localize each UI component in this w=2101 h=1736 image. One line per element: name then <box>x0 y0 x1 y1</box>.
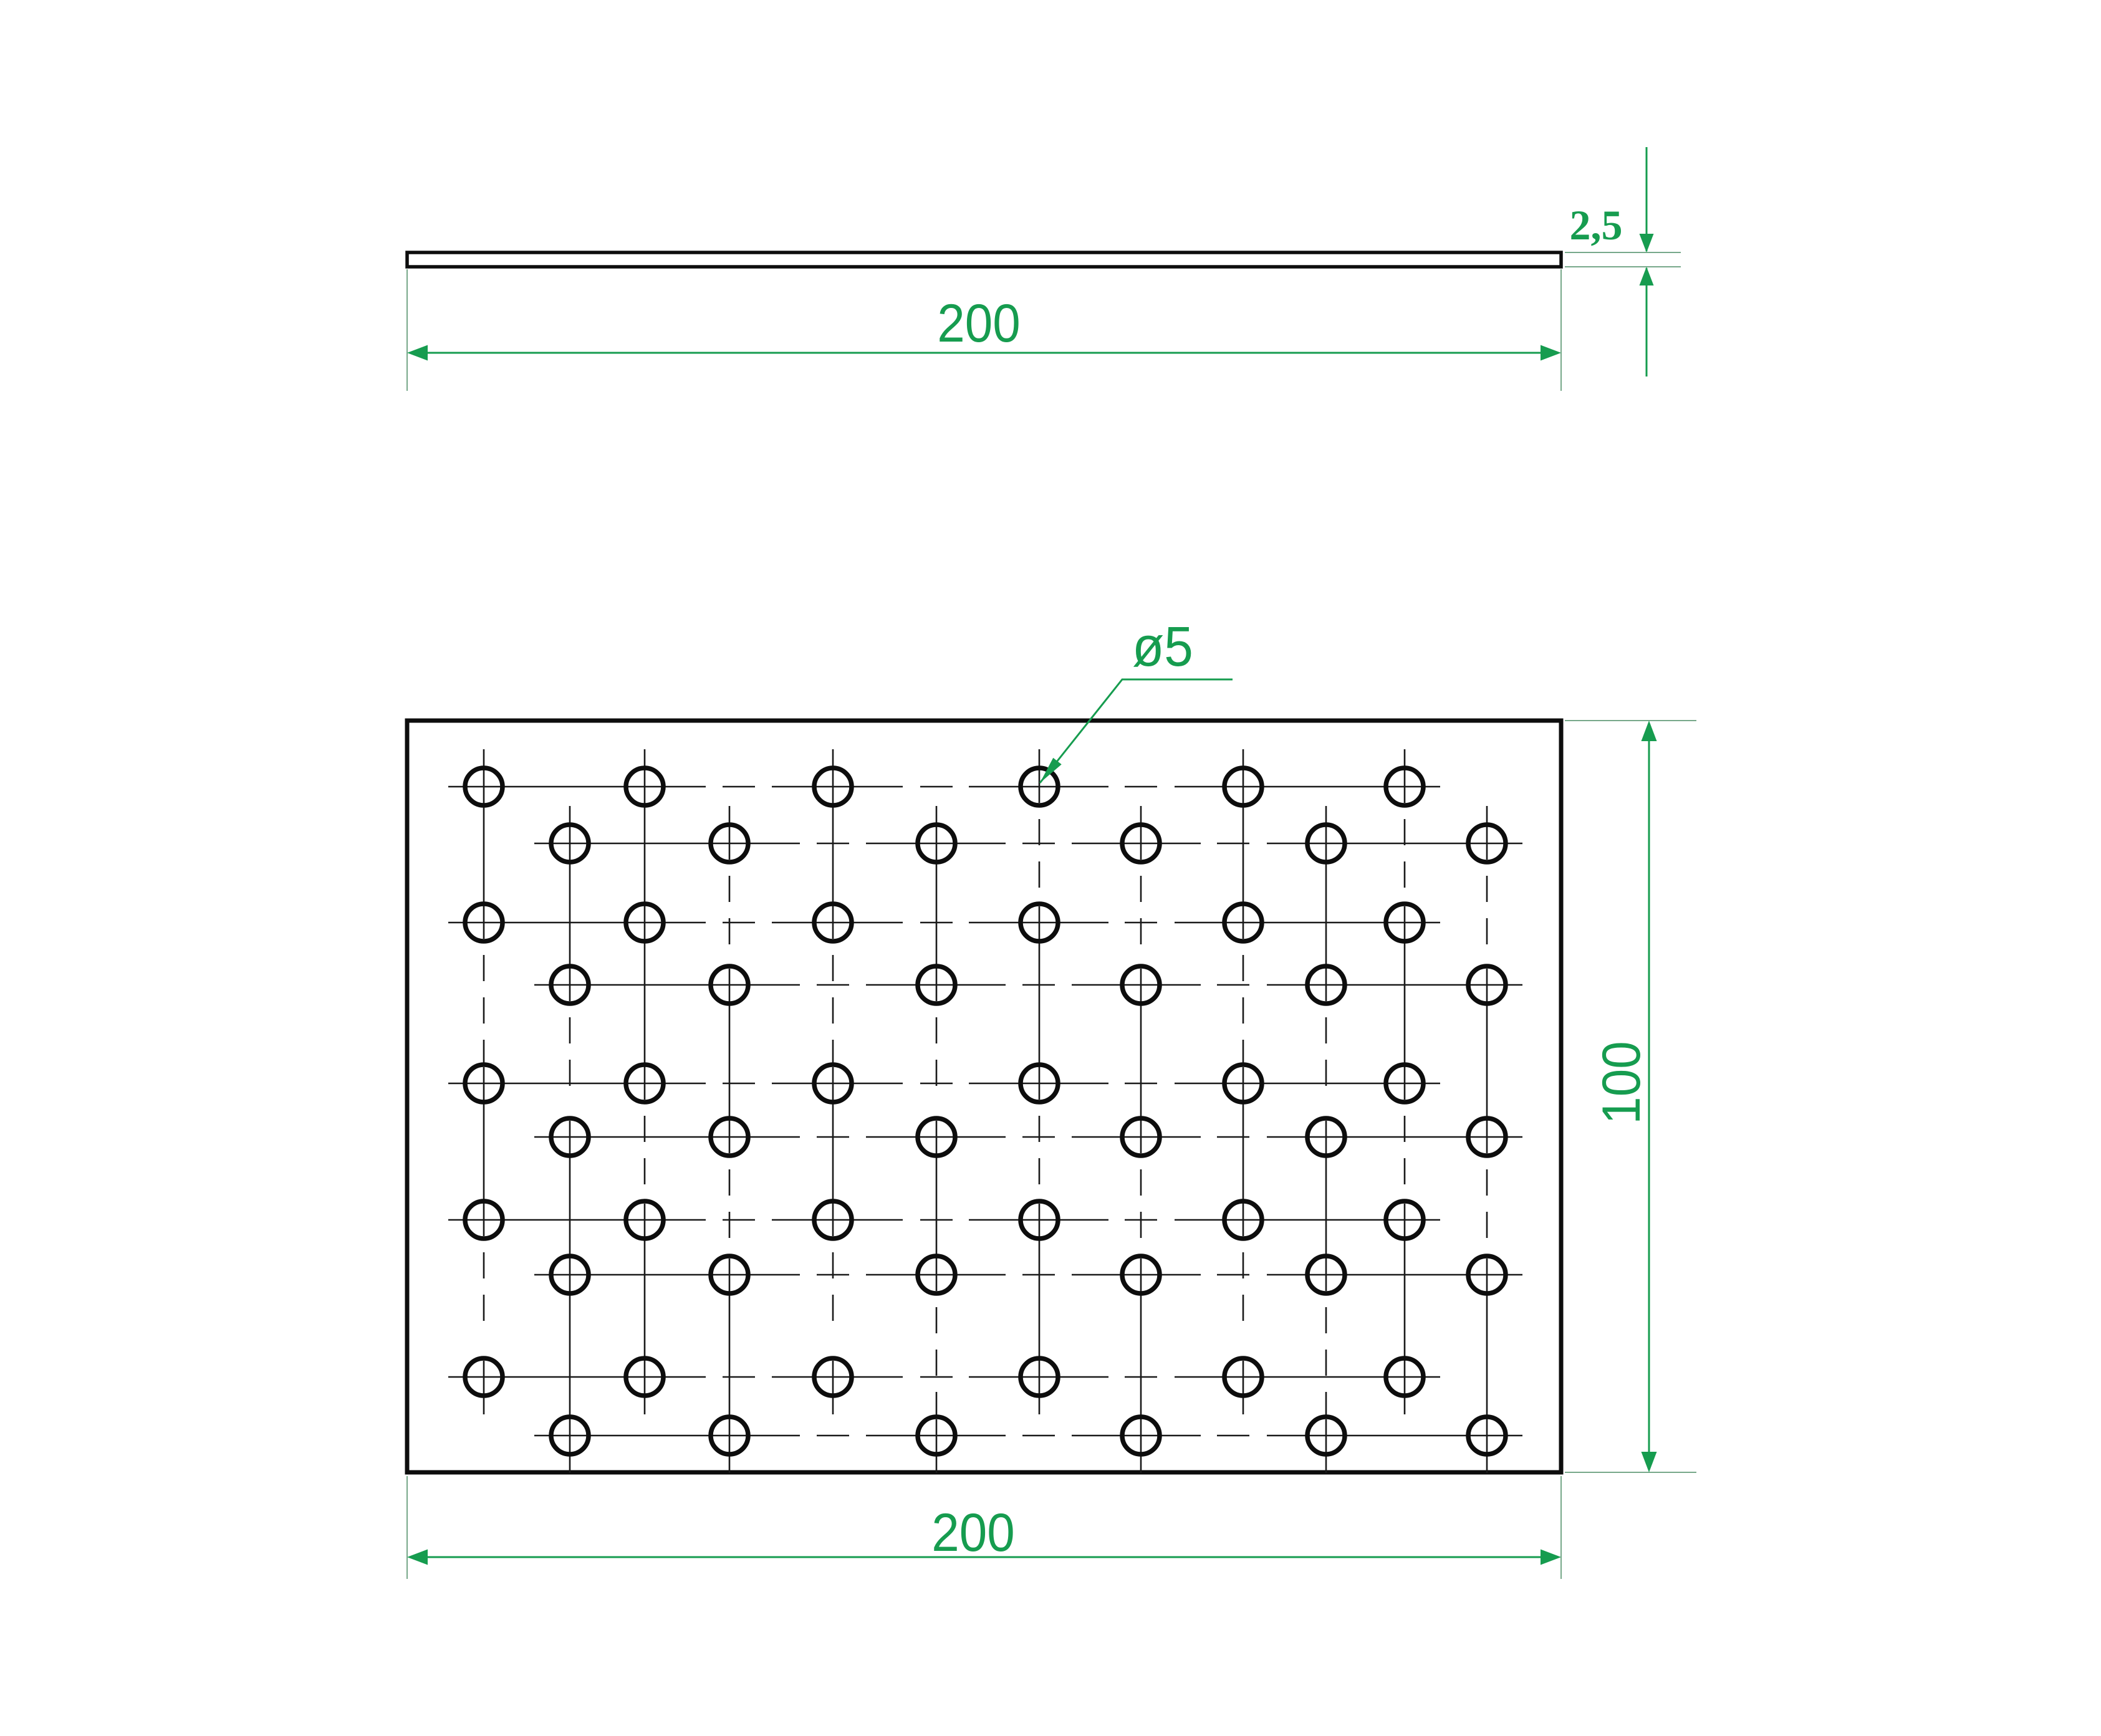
svg-text:100: 100 <box>1591 1041 1651 1124</box>
svg-text:2,5: 2,5 <box>1570 201 1623 249</box>
svg-text:ø5: ø5 <box>1132 615 1193 678</box>
svg-text:200: 200 <box>937 293 1020 353</box>
svg-text:200: 200 <box>931 1502 1014 1562</box>
